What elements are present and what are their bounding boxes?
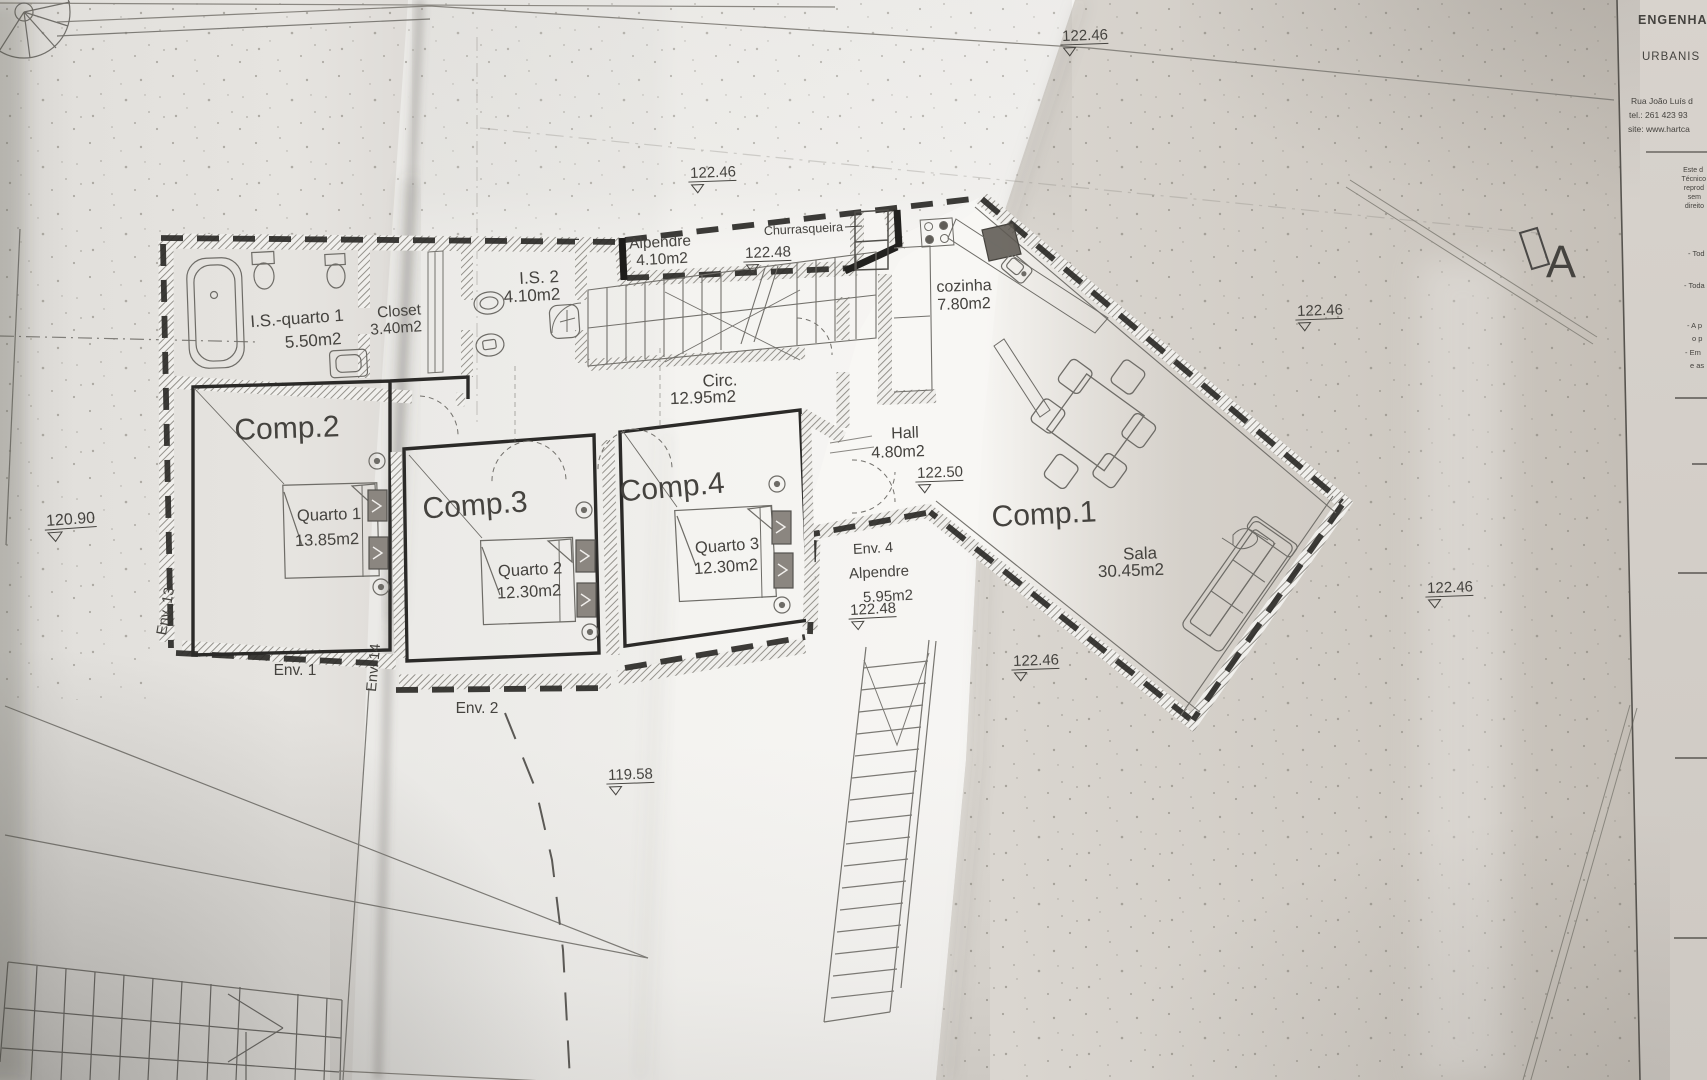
svg-text:119.58: 119.58 [608,765,653,784]
svg-text:30.45m2: 30.45m2 [1098,560,1165,581]
svg-text:URBANIS: URBANIS [1642,51,1700,63]
svg-text:7.80m2: 7.80m2 [937,295,991,314]
svg-text:122.46: 122.46 [1013,651,1059,670]
svg-text:122.46: 122.46 [690,163,736,182]
svg-text:122.48: 122.48 [745,243,791,262]
svg-text:12.95m2: 12.95m2 [670,387,737,408]
svg-text:3.40m2: 3.40m2 [370,318,423,339]
svg-text:5.50m2: 5.50m2 [284,329,342,352]
svg-text:122.46: 122.46 [1427,578,1473,597]
svg-text:- Em: - Em [1685,348,1701,357]
svg-text:Técnico: Técnico [1681,176,1706,183]
svg-text:ENGENHAR: ENGENHAR [1638,13,1707,27]
svg-text:Alpendre: Alpendre [849,562,910,582]
svg-text:Rua João Luís d: Rua João Luís d [1631,96,1693,106]
svg-text:reprod: reprod [1684,185,1704,192]
svg-text:- A p: - A p [1687,321,1702,330]
svg-text:4.80m2: 4.80m2 [871,443,925,462]
svg-text:Quarto 1: Quarto 1 [297,505,362,525]
svg-text:4.10m2: 4.10m2 [503,285,561,307]
svg-text:Comp.1: Comp.1 [991,495,1098,533]
svg-text:12.30m2: 12.30m2 [497,581,562,602]
svg-text:122.48: 122.48 [850,600,897,619]
svg-text:122.50: 122.50 [917,463,963,482]
svg-text:122.46: 122.46 [1062,26,1108,45]
svg-text:- Toda: - Toda [1684,281,1706,290]
svg-text:site: www.hartca: site: www.hartca [1628,124,1690,134]
svg-text:Quarto 2: Quarto 2 [498,559,563,580]
svg-text:direito: direito [1685,203,1704,210]
svg-text:tel.: 261 423 93: tel.: 261 423 93 [1629,110,1688,120]
svg-text:sem: sem [1688,194,1701,201]
svg-text:4.10m2: 4.10m2 [636,250,689,270]
svg-text:Hall: Hall [891,425,919,443]
svg-text:o p: o p [1692,334,1702,343]
svg-text:cozinha: cozinha [936,277,992,296]
svg-text:122.46: 122.46 [1297,301,1343,320]
svg-text:e as: e as [1690,361,1704,370]
svg-text:Este d: Este d [1683,167,1703,174]
svg-text:Env. 4: Env. 4 [853,540,894,558]
svg-text:Comp.2: Comp.2 [234,410,340,447]
svg-text:- Tod: - Tod [1688,249,1705,258]
svg-text:13.85m2: 13.85m2 [295,530,360,550]
